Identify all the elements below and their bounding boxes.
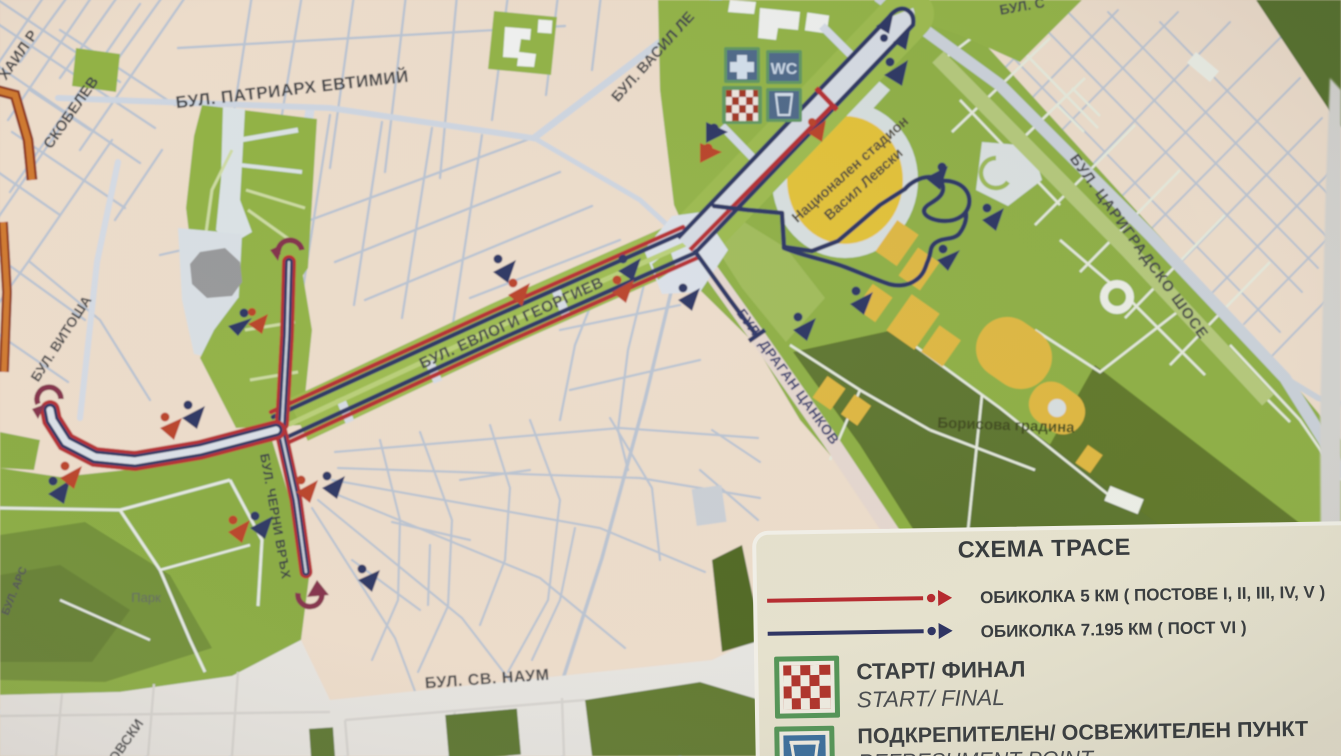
svg-text:СХЕМА ТРАСЕ: СХЕМА ТРАСЕ: [958, 534, 1131, 563]
svg-text:WC: WC: [771, 61, 798, 78]
svg-text:START/ FINAL: START/ FINAL: [857, 685, 1005, 712]
svg-text:Парк: Парк: [131, 590, 161, 605]
svg-text:СТАРТ/ ФИНАЛ: СТАРТ/ ФИНАЛ: [856, 657, 1026, 685]
